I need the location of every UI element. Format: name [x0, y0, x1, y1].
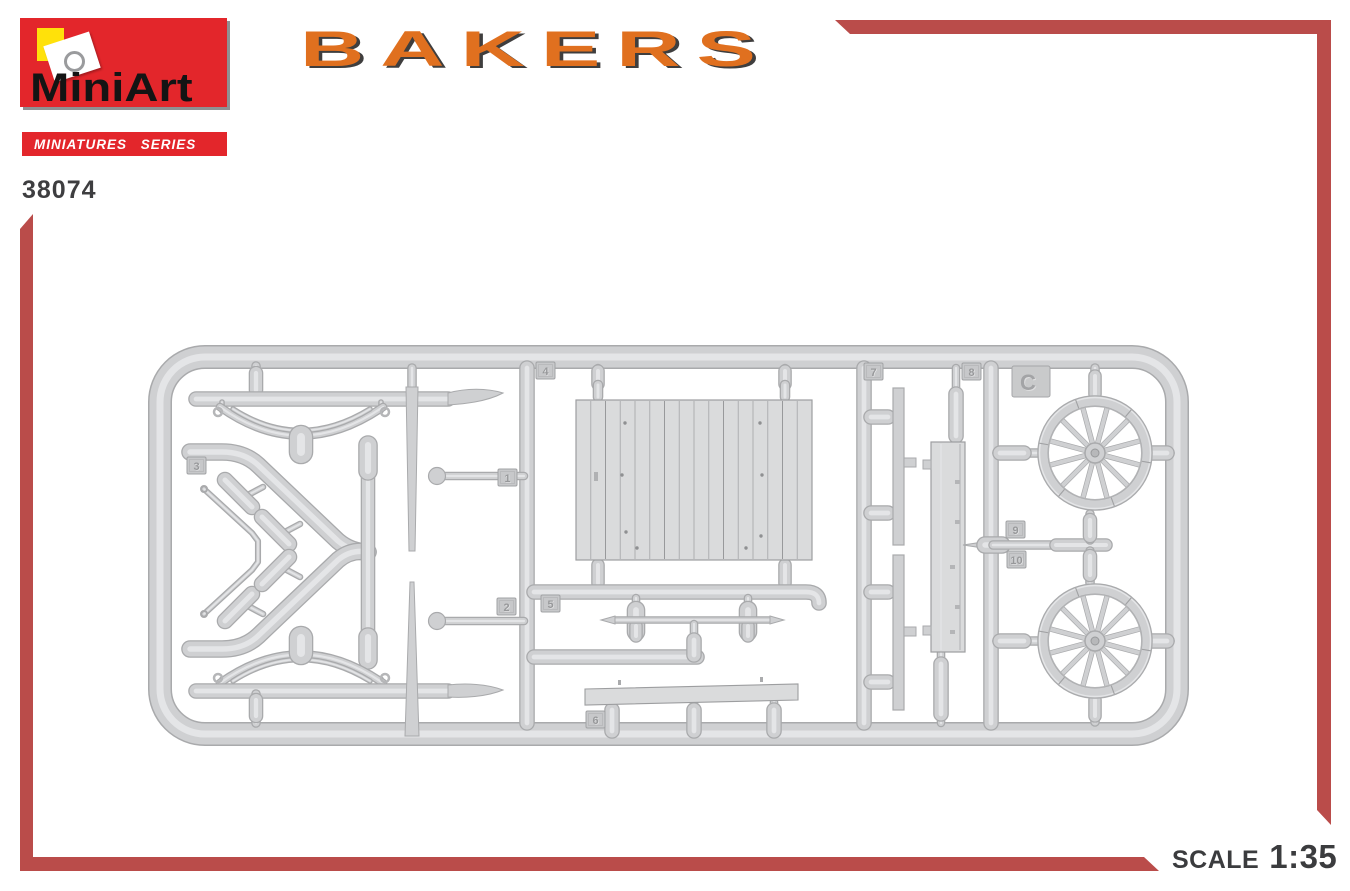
floor-panel-part: [576, 400, 812, 560]
part-tag-4: 44: [536, 362, 555, 379]
part-tag-8: 88: [962, 363, 981, 380]
side-plank-part: [585, 677, 798, 705]
scale-label: SCALE: [1172, 846, 1259, 875]
svg-text:6: 6: [592, 715, 598, 727]
part-tag-9: 99: [1006, 521, 1025, 538]
wheel-part-1: [1039, 398, 1150, 509]
svg-text:1: 1: [504, 473, 510, 485]
svg-text:4: 4: [542, 366, 549, 378]
svg-text:5: 5: [547, 599, 553, 611]
svg-text:3: 3: [193, 461, 199, 473]
scale-indicator: SCALE 1:35: [1172, 838, 1337, 876]
part-tag-7: 77: [864, 363, 883, 380]
part-tag-1: 11: [498, 469, 517, 486]
svg-text:7: 7: [870, 367, 876, 379]
part-tag-3: 33: [187, 457, 206, 474]
svg-text:10: 10: [1010, 555, 1022, 567]
part-tag-5: 55: [541, 595, 560, 612]
bolt-part: [225, 594, 252, 621]
svg-text:C: C: [1020, 370, 1036, 395]
long-plank-part: [923, 442, 965, 652]
bolt-part: [262, 517, 289, 544]
svg-text:8: 8: [968, 367, 974, 379]
rail-part: [893, 555, 904, 710]
svg-text:9: 9: [1012, 525, 1018, 537]
svg-text:2: 2: [503, 602, 509, 614]
rail-part: [893, 388, 904, 545]
part-tag-10: 1010: [1007, 551, 1026, 568]
bolt-part: [225, 480, 252, 507]
wheel-part-2: [1039, 586, 1150, 697]
part-tag-2: 22: [497, 598, 516, 615]
bolt-part: [262, 557, 289, 584]
scale-value: 1:35: [1269, 838, 1337, 876]
sprue-letter-badge: CC: [1012, 366, 1050, 397]
part-tag-6: 66: [586, 711, 605, 728]
sprue-photo: 3311224455667788991010CC: [0, 0, 1350, 891]
